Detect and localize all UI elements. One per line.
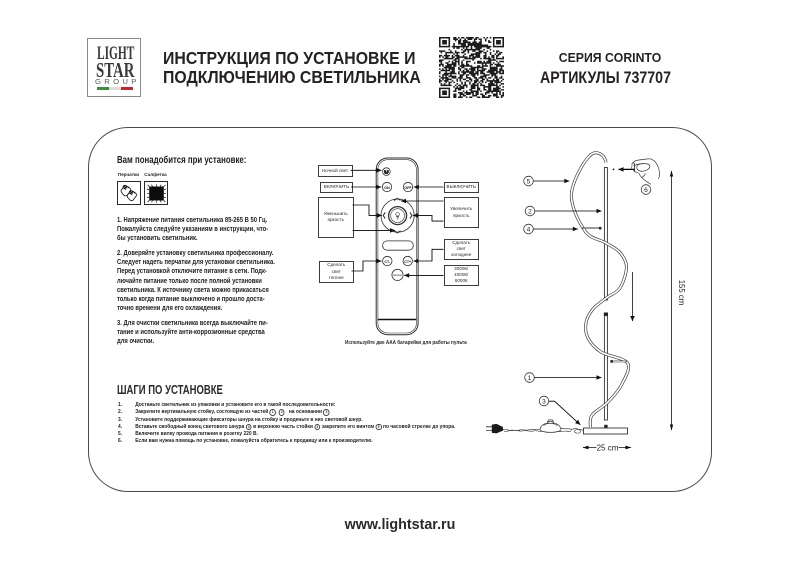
svg-text:CT-: CT- <box>384 260 391 264</box>
svg-text:CT+: CT+ <box>404 260 411 264</box>
svg-text:25 cm: 25 cm <box>597 443 619 452</box>
svg-text:5: 5 <box>527 178 531 185</box>
svg-text:1: 1 <box>528 375 532 382</box>
svg-text:Section: Section <box>393 273 402 277</box>
svg-text:6: 6 <box>644 187 648 194</box>
svg-text:155 cm: 155 cm <box>677 280 686 306</box>
svg-text:OFF: OFF <box>404 186 412 190</box>
svg-text:4: 4 <box>527 226 531 233</box>
svg-text:3: 3 <box>542 398 546 405</box>
svg-text:ON: ON <box>384 186 390 190</box>
svg-text:2: 2 <box>528 208 532 215</box>
